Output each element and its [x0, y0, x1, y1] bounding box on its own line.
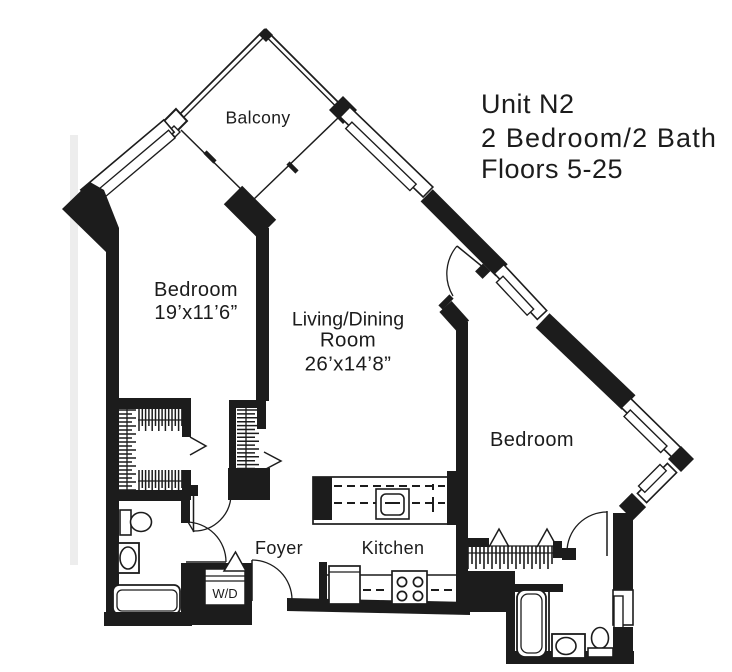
- svg-text:Foyer: Foyer: [255, 538, 303, 558]
- svg-text:Kitchen: Kitchen: [362, 538, 425, 558]
- svg-text:Living/Dining: Living/Dining: [292, 309, 404, 331]
- svg-text:Bedroom: Bedroom: [490, 429, 574, 451]
- svg-text:Bedroom: Bedroom: [154, 279, 238, 301]
- svg-text:W/D: W/D: [212, 586, 237, 601]
- svg-text:Floors 5-25: Floors 5-25: [481, 154, 623, 184]
- svg-text:19’x11’6”: 19’x11’6”: [154, 302, 237, 324]
- svg-text:2 Bedroom/2 Bath: 2 Bedroom/2 Bath: [481, 123, 717, 153]
- svg-text:Balcony: Balcony: [225, 108, 290, 128]
- svg-text:Room: Room: [320, 329, 376, 352]
- svg-text:26’x14’8”: 26’x14’8”: [305, 353, 392, 376]
- svg-text:Unit N2: Unit N2: [481, 89, 575, 119]
